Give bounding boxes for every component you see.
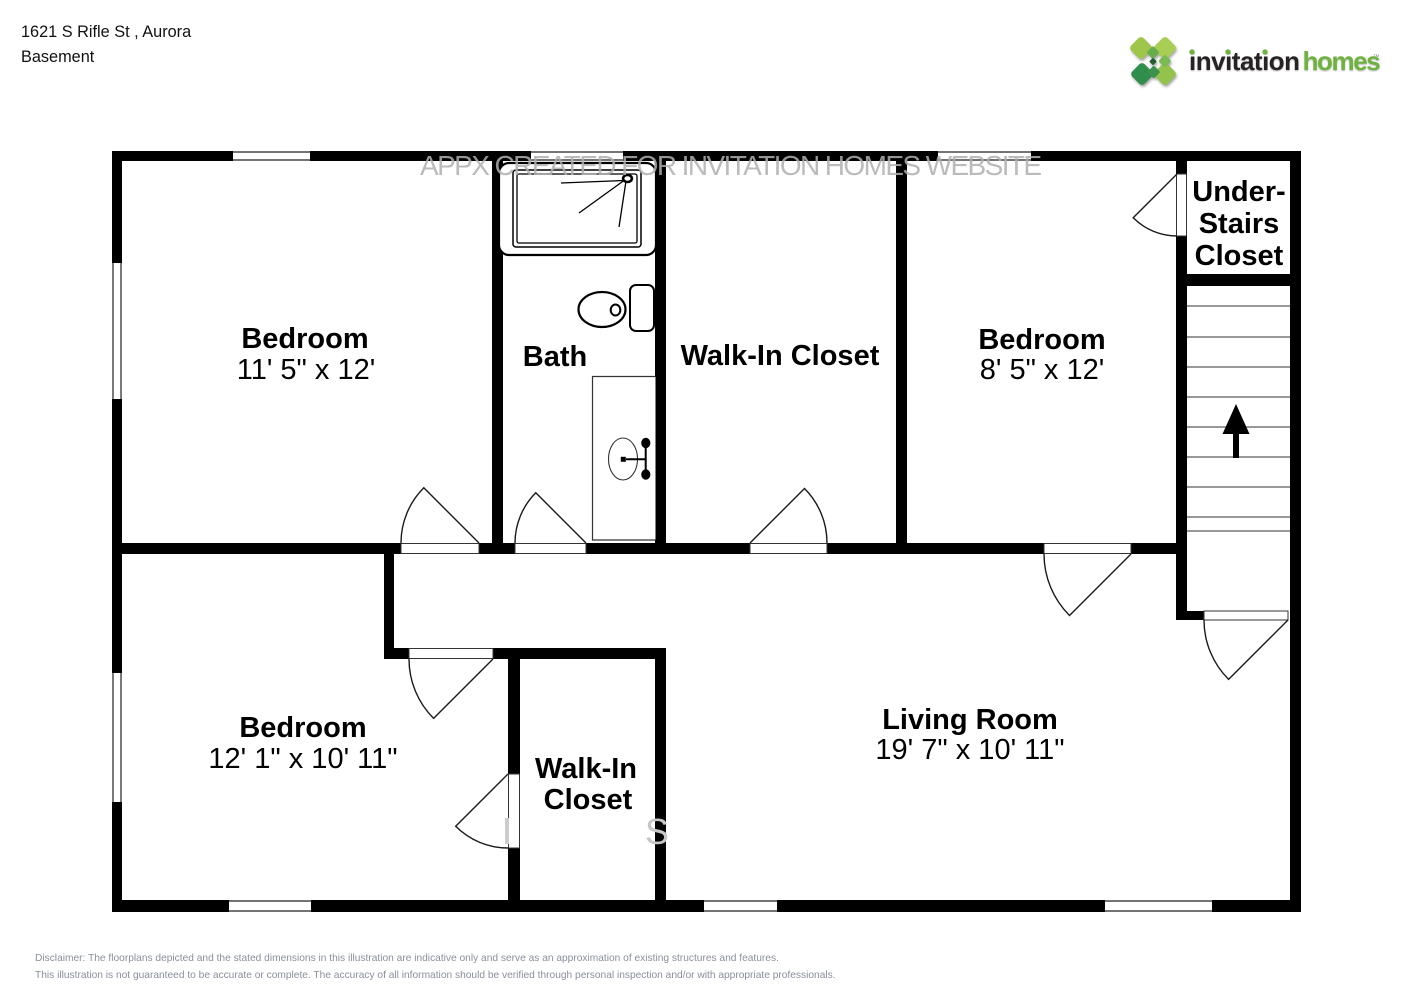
svg-text:Bedroom: Bedroom [241,323,368,355]
svg-text:8' 5" x 12': 8' 5" x 12' [980,354,1105,386]
svg-text:APPX CREATED FOR INVITATION HO: APPX CREATED FOR INVITATION HOMES WEBSIT… [420,150,1041,181]
svg-text:Closet: Closet [544,784,633,816]
svg-text:19' 7" x 10' 11": 19' 7" x 10' 11" [875,734,1064,766]
svg-text:11' 5" x 12': 11' 5" x 12' [237,354,376,386]
svg-text:Living Room: Living Room [882,704,1058,736]
svg-text:Walk-In Closet: Walk-In Closet [681,340,880,372]
svg-text:Bedroom: Bedroom [978,324,1105,356]
svg-text:Stairs: Stairs [1199,208,1280,240]
svg-text:Disclaimer: The floorplans dep: Disclaimer: The floorplans depicted and … [35,953,779,964]
svg-text:S: S [645,811,669,852]
svg-text:Bath: Bath [523,341,587,373]
svg-text:1621 S Rifle St , Aurora: 1621 S Rifle St , Aurora [21,23,192,41]
svg-text:This illustration is not guara: This illustration is not guaranteed to b… [35,970,836,981]
svg-text:Bedroom: Bedroom [239,712,366,744]
svg-text:12' 1" x 10' 11": 12' 1" x 10' 11" [208,743,397,775]
svg-text:Walk-In: Walk-In [535,753,637,785]
svg-text:Basement: Basement [21,48,95,66]
svg-text:invitationhomes: invitationhomes [1189,46,1380,76]
svg-text:Closet: Closet [1195,240,1284,272]
svg-text:Under-: Under- [1192,176,1285,208]
svg-text:™: ™ [1373,54,1380,61]
